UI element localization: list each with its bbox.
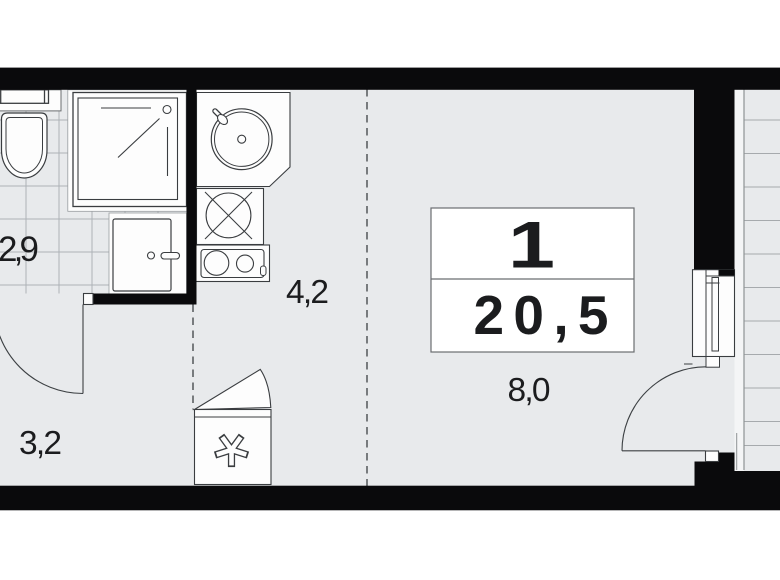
- svg-text:20,5: 20,5: [474, 284, 609, 346]
- svg-text:4,2: 4,2: [286, 274, 329, 311]
- svg-text:2,9: 2,9: [0, 230, 39, 269]
- svg-text:3,2: 3,2: [19, 425, 62, 462]
- svg-text:1: 1: [508, 208, 555, 282]
- svg-text:8,0: 8,0: [508, 372, 551, 409]
